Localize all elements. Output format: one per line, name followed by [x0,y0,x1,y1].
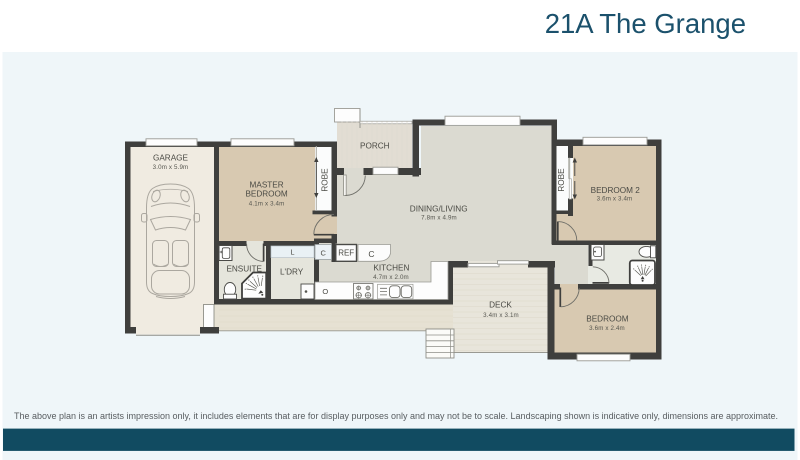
svg-text:L: L [290,247,294,256]
svg-text:3.4m x 3.1m: 3.4m x 3.1m [483,312,519,319]
svg-text:4.1m x 3.4m: 4.1m x 3.4m [249,201,285,208]
svg-text:21A The Grange: 21A The Grange [545,8,746,39]
svg-text:ENSUITE: ENSUITE [226,264,262,273]
svg-text:L'DRY: L'DRY [280,268,304,277]
svg-text:3.6m x 2.4m: 3.6m x 2.4m [589,325,625,332]
svg-text:O: O [322,287,328,296]
svg-text:4.7m x 2.0m: 4.7m x 2.0m [373,274,409,281]
svg-text:DECK: DECK [489,301,512,310]
svg-text:C: C [368,249,374,259]
svg-text:BEDROOM: BEDROOM [586,314,628,323]
svg-text:3.6m x 3.4m: 3.6m x 3.4m [597,195,633,202]
svg-text:ROBE: ROBE [557,168,566,192]
svg-text:BEDROOM: BEDROOM [245,190,287,199]
svg-text:BEDROOM 2: BEDROOM 2 [591,186,641,195]
svg-text:3.0m x 5.9m: 3.0m x 5.9m [153,164,189,171]
svg-text:KITCHEN: KITCHEN [373,263,409,272]
svg-text:DINING/LIVING: DINING/LIVING [410,205,468,214]
svg-text:7.8m x 4.9m: 7.8m x 4.9m [421,215,457,222]
svg-text:C: C [320,248,326,257]
svg-text:ROBE: ROBE [321,168,330,192]
svg-text:PORCH: PORCH [360,141,390,150]
svg-text:REF: REF [338,249,354,258]
svg-text:The above plan is an artists i: The above plan is an artists impression … [14,411,778,421]
svg-text:GARAGE: GARAGE [153,153,189,162]
svg-text:MASTER: MASTER [250,181,284,190]
